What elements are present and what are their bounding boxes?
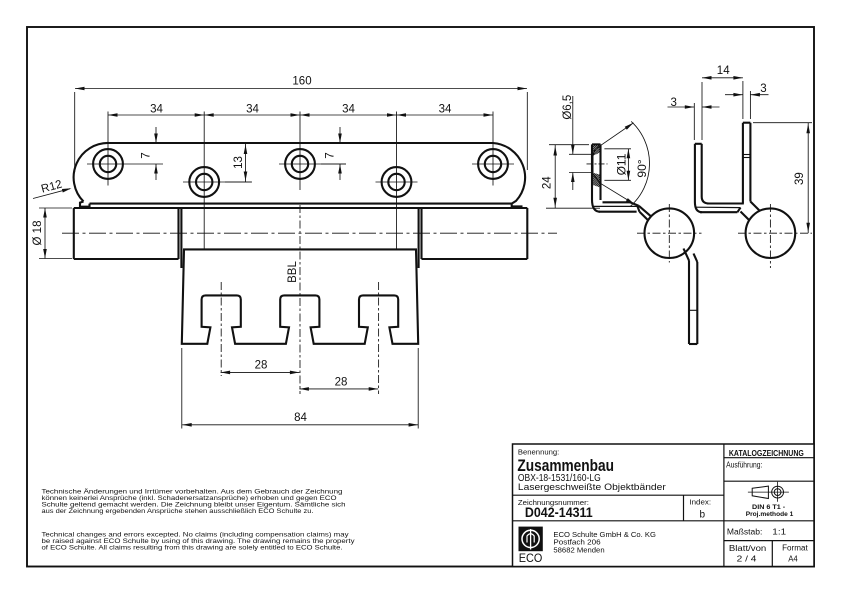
svg-text:13: 13 <box>233 156 245 169</box>
svg-text:14: 14 <box>717 65 730 77</box>
svg-text:3: 3 <box>760 83 766 95</box>
svg-text:b: b <box>700 510 706 521</box>
svg-text:2 / 4: 2 / 4 <box>737 555 758 564</box>
svg-text:BBL: BBL <box>287 261 299 283</box>
svg-text:34: 34 <box>150 103 163 115</box>
svg-text:aus der Zeichnung ergebenden A: aus der Zeichnung ergebenden Ansprüche s… <box>42 508 314 515</box>
svg-text:84: 84 <box>294 412 307 424</box>
svg-text:R12: R12 <box>40 179 63 196</box>
svg-text:1:1: 1:1 <box>772 528 786 537</box>
svg-text:Index:: Index: <box>689 498 711 507</box>
svg-text:160: 160 <box>292 75 311 87</box>
svg-text:28: 28 <box>335 376 348 388</box>
svg-text:A4: A4 <box>788 555 798 564</box>
svg-text:Lasergeschweißte Objektbänder: Lasergeschweißte Objektbänder <box>518 482 666 492</box>
svg-text:ECO: ECO <box>519 553 543 565</box>
svg-text:Ø6,5: Ø6,5 <box>562 95 574 120</box>
svg-text:DIN 6 T1 -: DIN 6 T1 - <box>752 504 785 511</box>
svg-text:D042-14311: D042-14311 <box>525 505 593 520</box>
svg-text:39: 39 <box>794 172 806 185</box>
svg-text:34: 34 <box>246 103 259 115</box>
svg-text:24: 24 <box>542 176 554 189</box>
svg-text:Maßstab:: Maßstab: <box>727 528 763 537</box>
svg-text:34: 34 <box>439 103 452 115</box>
svg-text:7: 7 <box>325 152 337 158</box>
svg-text:90°: 90° <box>635 159 649 177</box>
svg-text:28: 28 <box>255 360 268 372</box>
svg-text:Benennung:: Benennung: <box>518 448 559 457</box>
svg-text:Ø11: Ø11 <box>615 153 629 175</box>
svg-text:3: 3 <box>670 97 676 109</box>
svg-text:Proj.methode 1: Proj.methode 1 <box>746 511 794 518</box>
svg-text:of ECO Schulte. All claims res: of ECO Schulte. All claims resulting fro… <box>42 545 343 552</box>
svg-text:Ø 18: Ø 18 <box>32 221 44 246</box>
svg-text:Zusammenbau: Zusammenbau <box>517 457 614 475</box>
svg-text:Format: Format <box>782 543 808 552</box>
svg-text:Ausführung:: Ausführung: <box>726 460 762 469</box>
svg-text:58682 Menden: 58682 Menden <box>553 546 604 555</box>
svg-text:KATALOGZEICHNUNG: KATALOGZEICHNUNG <box>729 449 804 458</box>
svg-text:Blatt/von: Blatt/von <box>729 544 766 553</box>
svg-text:7: 7 <box>141 152 153 158</box>
svg-text:34: 34 <box>342 103 355 115</box>
